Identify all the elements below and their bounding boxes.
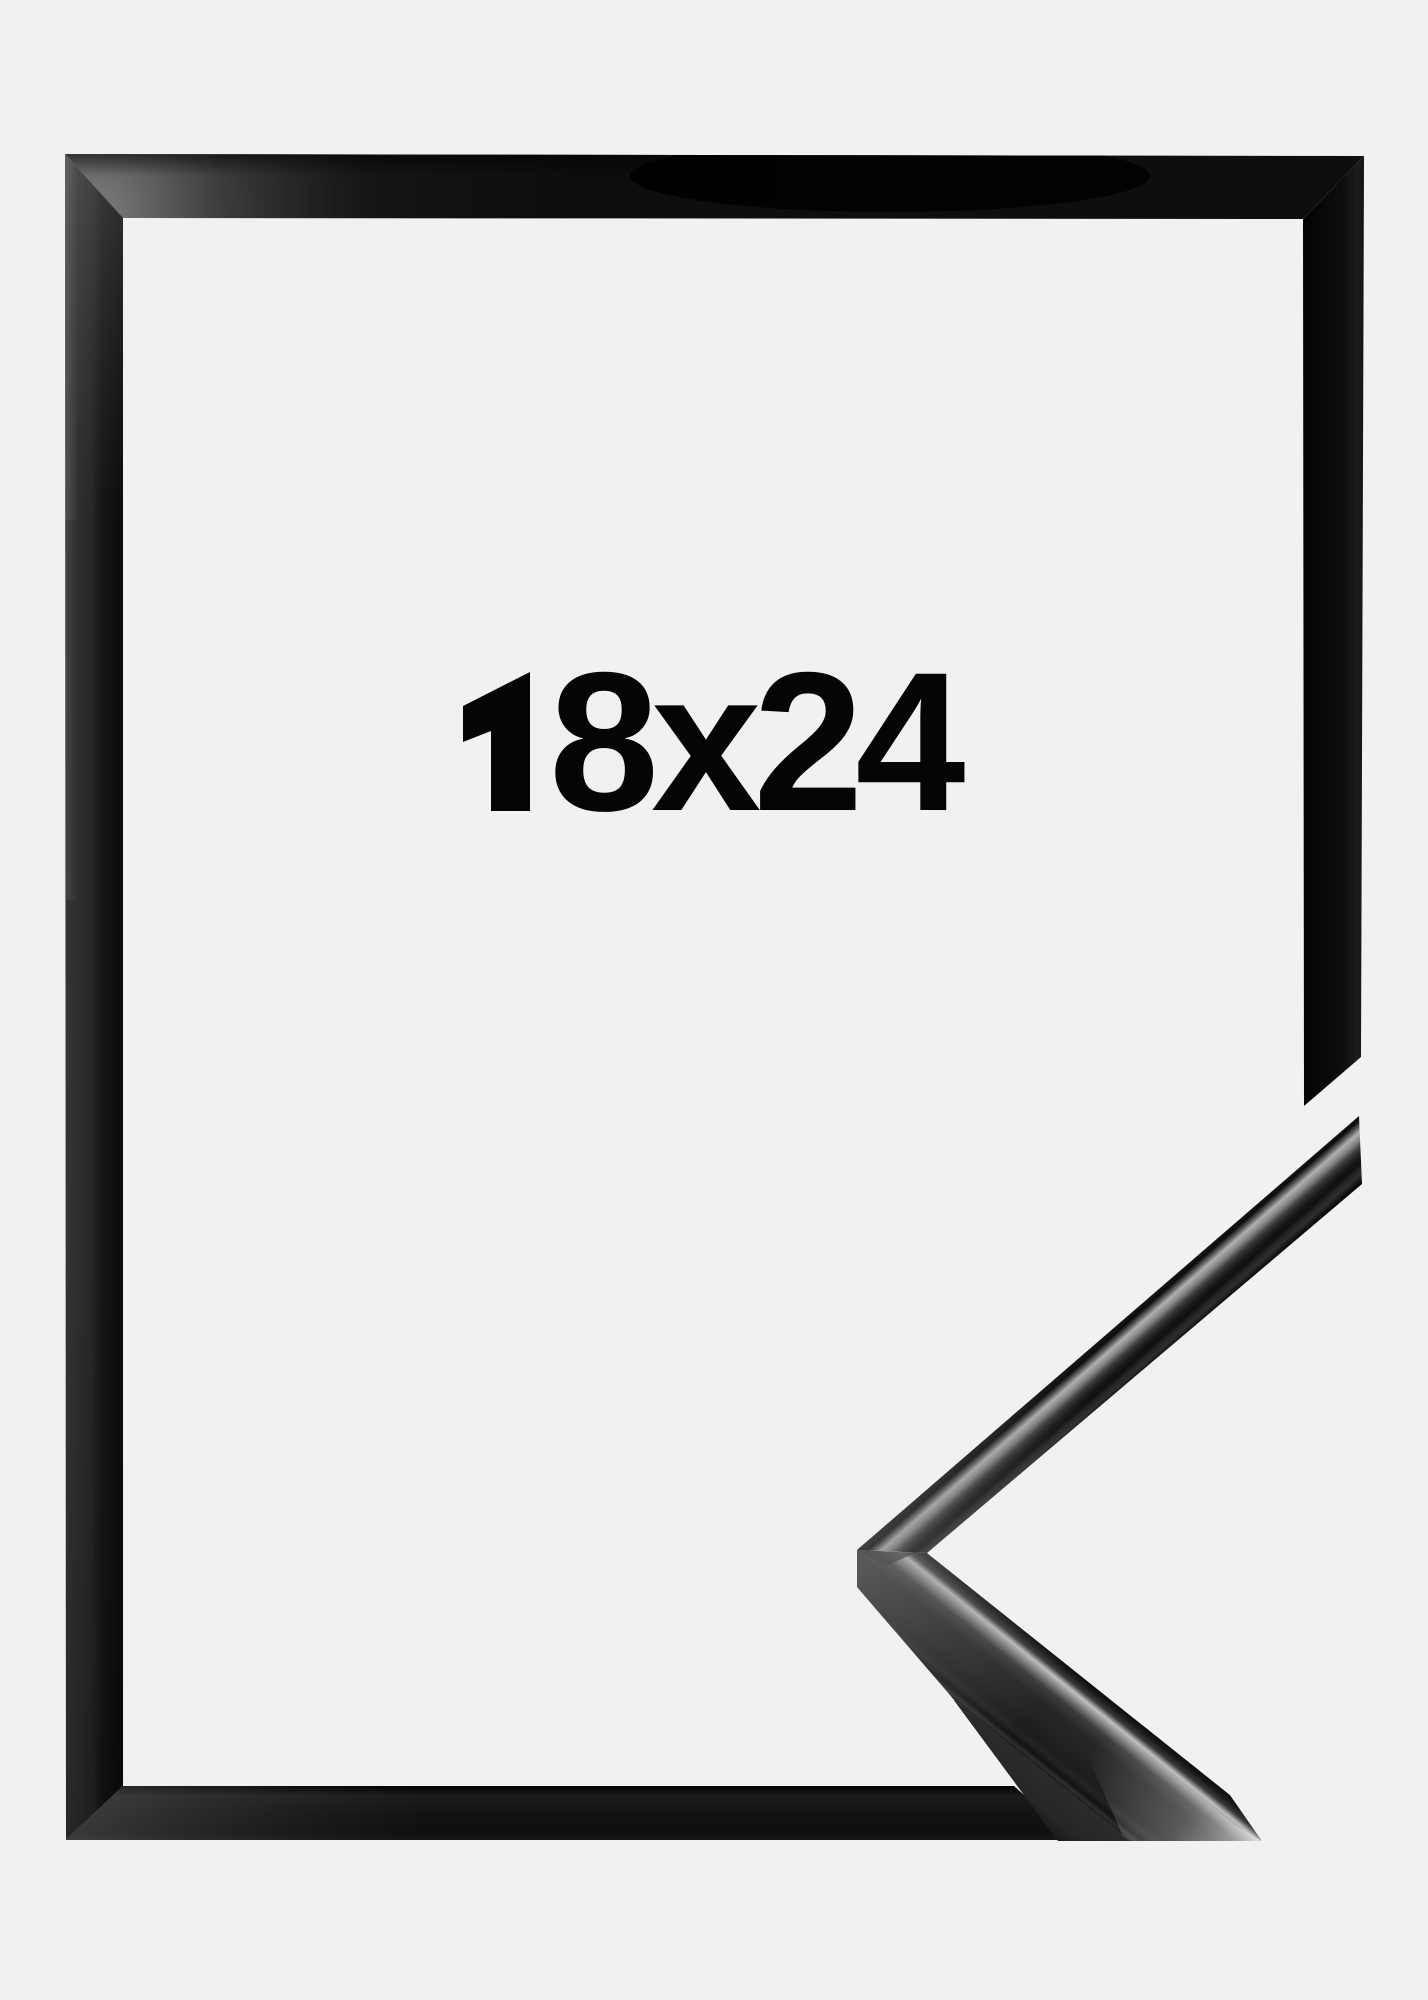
- svg-text:8x24: 8x24: [549, 631, 965, 852]
